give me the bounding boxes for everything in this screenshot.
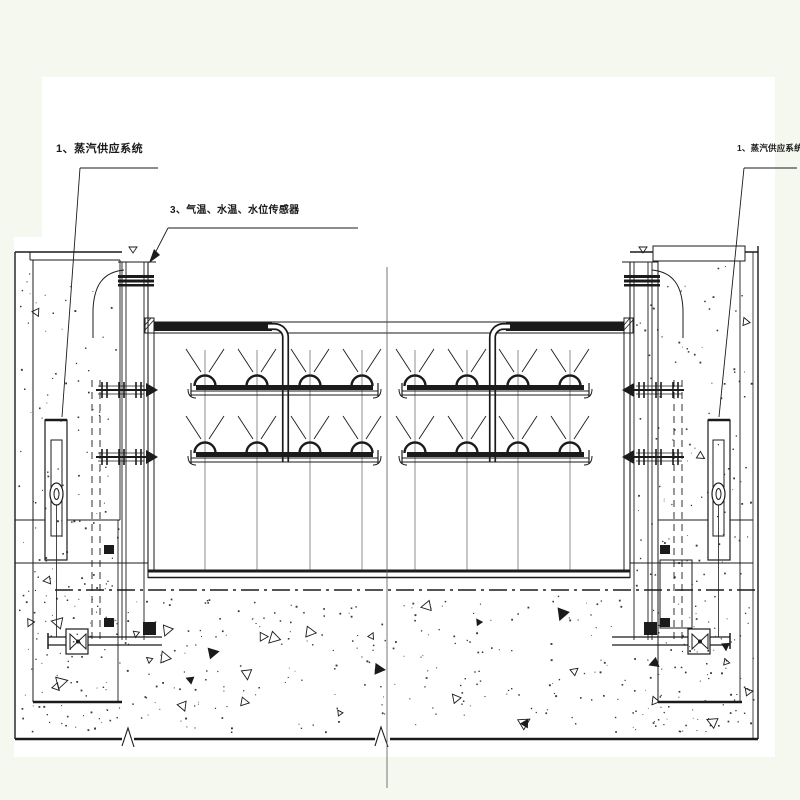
valve-left xyxy=(66,629,88,654)
valve-right xyxy=(688,629,710,654)
flanged-connections xyxy=(96,382,684,465)
label-steam-supply-left: 1、蒸汽供应系统 xyxy=(56,141,158,417)
cad-drawing-page: 1、蒸汽供应系统 3、气温、水温、水位传感器 1、蒸汽供应系统 xyxy=(0,0,800,800)
label-text: 3、气温、水温、水位传感器 xyxy=(170,203,300,216)
label-text: 1、蒸汽供应系统 xyxy=(737,143,800,153)
pipe-fitting xyxy=(660,618,670,627)
hidden-pipe-right xyxy=(674,380,682,640)
bottom-piping xyxy=(48,622,730,654)
anchor-block-right xyxy=(624,318,633,333)
label-sensors: 3、气温、水温、水位传感器 xyxy=(149,203,358,263)
pipe-elbow-right xyxy=(644,622,657,635)
drop-pipe-right xyxy=(492,326,510,462)
float-gauge xyxy=(50,483,63,505)
concrete-stipple xyxy=(18,266,754,733)
break-mark xyxy=(375,727,388,747)
right-gate-slot xyxy=(622,262,683,640)
pipe-fitting xyxy=(104,545,114,554)
gate-leaf xyxy=(145,262,633,578)
drawing-canvas: 1、蒸汽供应系统 3、气温、水温、水位传感器 1、蒸汽供应系统 xyxy=(0,0,800,800)
steam-cylinder-left xyxy=(45,420,67,637)
anchor-block-left xyxy=(145,318,154,333)
steam-header-left xyxy=(154,322,272,331)
label-text: 1、蒸汽供应系统 xyxy=(56,141,143,155)
float-gauge xyxy=(712,483,725,505)
leader-arrowhead xyxy=(149,249,160,263)
steam-header-right xyxy=(506,322,624,331)
left-pier xyxy=(15,247,148,739)
pipe-fitting xyxy=(660,545,670,554)
hidden-pipe-left xyxy=(92,380,100,640)
leader-line xyxy=(62,168,80,417)
break-mark xyxy=(122,728,134,747)
steam-cylinder-right xyxy=(660,420,730,637)
pipe-fitting xyxy=(104,618,114,627)
drain-box-right xyxy=(660,560,692,628)
level-mark-left xyxy=(129,247,137,253)
spray-system xyxy=(186,349,592,570)
drop-pipe-left xyxy=(268,326,286,462)
pipe-elbow-left xyxy=(143,622,156,635)
